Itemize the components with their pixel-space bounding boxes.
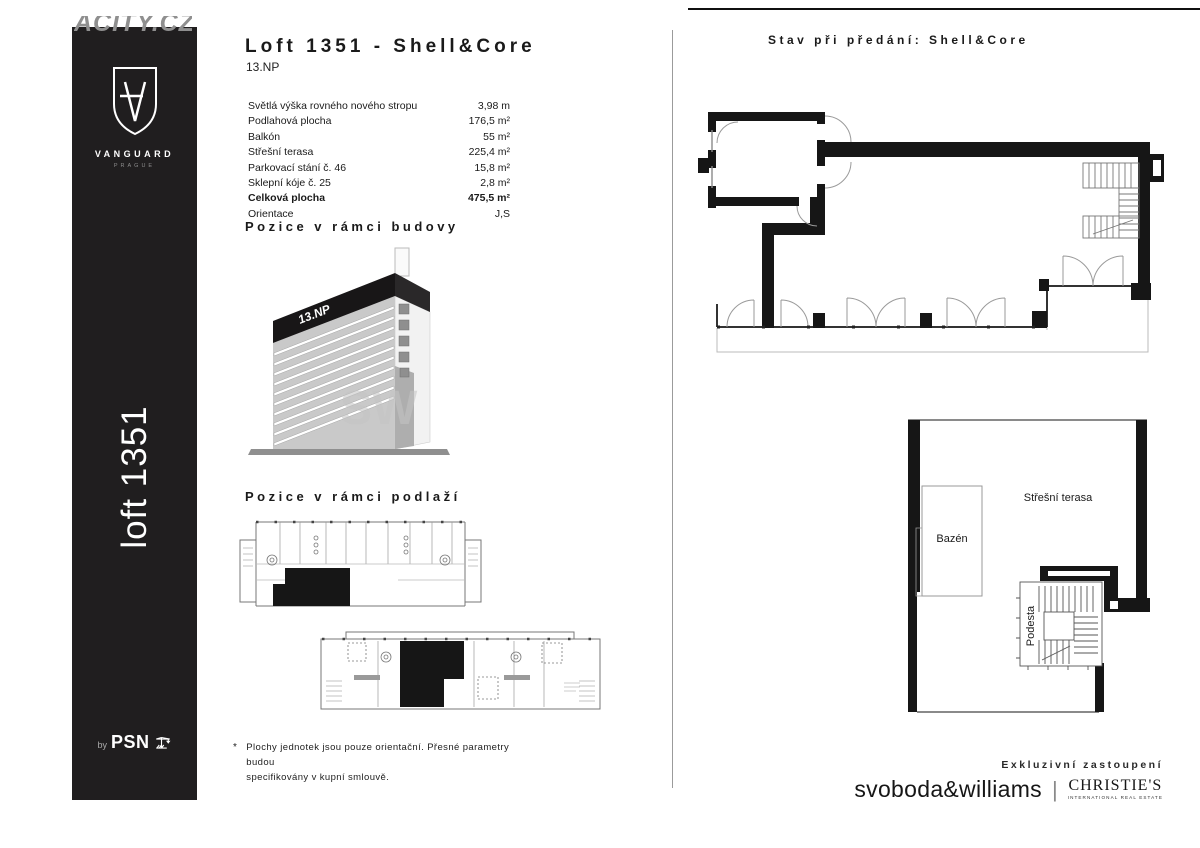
pool-label: Bazén [936, 533, 967, 545]
top-rule [688, 8, 1200, 10]
spec-row: Světlá výška rovného nového stropu3,98 m [248, 99, 510, 114]
watermark-top: ACITY.CZ [74, 16, 192, 43]
svoboda-williams-logo: svoboda&williams [854, 776, 1042, 803]
spec-row-total: Celková plocha475,5 m² [248, 191, 510, 206]
christies-wordmark: CHRISTIE'S [1068, 778, 1162, 794]
spec-label: Sklepní kóje č. 25 [248, 176, 331, 191]
psn-logo: by PSN [72, 732, 197, 753]
christies-logo: CHRISTIE'S INTERNATIONAL REAL ESTATE [1068, 778, 1163, 801]
spec-label: Parkovací stání č. 46 [248, 161, 346, 176]
logo-separator: | [1052, 777, 1058, 803]
staircase [1083, 163, 1139, 238]
spec-value: 2,8 m² [480, 176, 510, 191]
floor-number: 13.NP [246, 60, 279, 74]
spec-value: 475,5 m² [468, 191, 510, 206]
section-building-position: Pozice v rámci budovy [245, 219, 459, 234]
handover-state-header: Stav při předání: Shell&Core [768, 33, 1029, 47]
psn-name-label: PSN [111, 732, 150, 753]
brand-city: PRAGUE [72, 163, 197, 169]
spec-value: J,S [495, 207, 510, 222]
page-title: Loft 1351 - Shell&Core [245, 36, 536, 58]
spec-value: 176,5 m² [469, 114, 510, 129]
spec-value: 55 m² [483, 130, 510, 145]
spec-row: Parkovací stání č. 4615,8 m² [248, 161, 510, 176]
spec-label: Světlá výška rovného nového stropu [248, 99, 417, 114]
spec-value: 225,4 m² [469, 145, 510, 160]
footer-logos: svoboda&williams | CHRISTIE'S INTERNATIO… [0, 776, 1163, 803]
highlight-unit-outline [400, 641, 464, 707]
landing-label: Podesta [1025, 605, 1037, 646]
roof-terrace-plan: Bazén Střešní terasa Podesta [898, 408, 1160, 720]
exclusive-label: Exkluzivní zastoupení [0, 759, 1163, 771]
christies-subtitle: INTERNATIONAL REAL ESTATE [1068, 796, 1163, 801]
psn-by-label: by [97, 740, 107, 750]
brochure-page: VANGUARD PRAGUE loft 1351 by PSN ACITY.C… [0, 0, 1200, 848]
brand-name: VANGUARD [72, 149, 197, 159]
section-floor-position: Pozice v rámci podlaží [245, 489, 461, 504]
floor-position-plan-1 [238, 516, 483, 612]
highlight-unit-outline [273, 568, 350, 606]
spec-row: Sklepní kóje č. 252,8 m² [248, 176, 510, 191]
vanguard-shield-icon [110, 65, 160, 137]
spec-row: Podlahová plocha176,5 m² [248, 114, 510, 129]
spec-value: 15,8 m² [474, 161, 510, 176]
spec-label: Celková plocha [248, 191, 325, 206]
crane-icon [154, 734, 172, 750]
spec-row: Střešní terasa225,4 m² [248, 145, 510, 160]
spec-table: Světlá výška rovného nového stropu3,98 m… [248, 99, 510, 222]
unit-label-vertical: loft 1351 [115, 377, 155, 577]
spec-row: Balkón55 m² [248, 130, 510, 145]
main-floor-plan [695, 100, 1165, 370]
spec-label: Podlahová plocha [248, 114, 331, 129]
sidebar: VANGUARD PRAGUE loft 1351 by PSN [72, 27, 197, 800]
spec-label: Balkón [248, 130, 280, 145]
column-divider [672, 30, 673, 788]
terrace-label: Střešní terasa [1024, 492, 1093, 504]
watermark-sw: SW [340, 382, 418, 435]
floor-position-plan-2 [318, 629, 603, 715]
building-illustration: 13.NP SW [248, 246, 453, 461]
spec-label: Střešní terasa [248, 145, 313, 160]
spec-value: 3,98 m [478, 99, 510, 114]
